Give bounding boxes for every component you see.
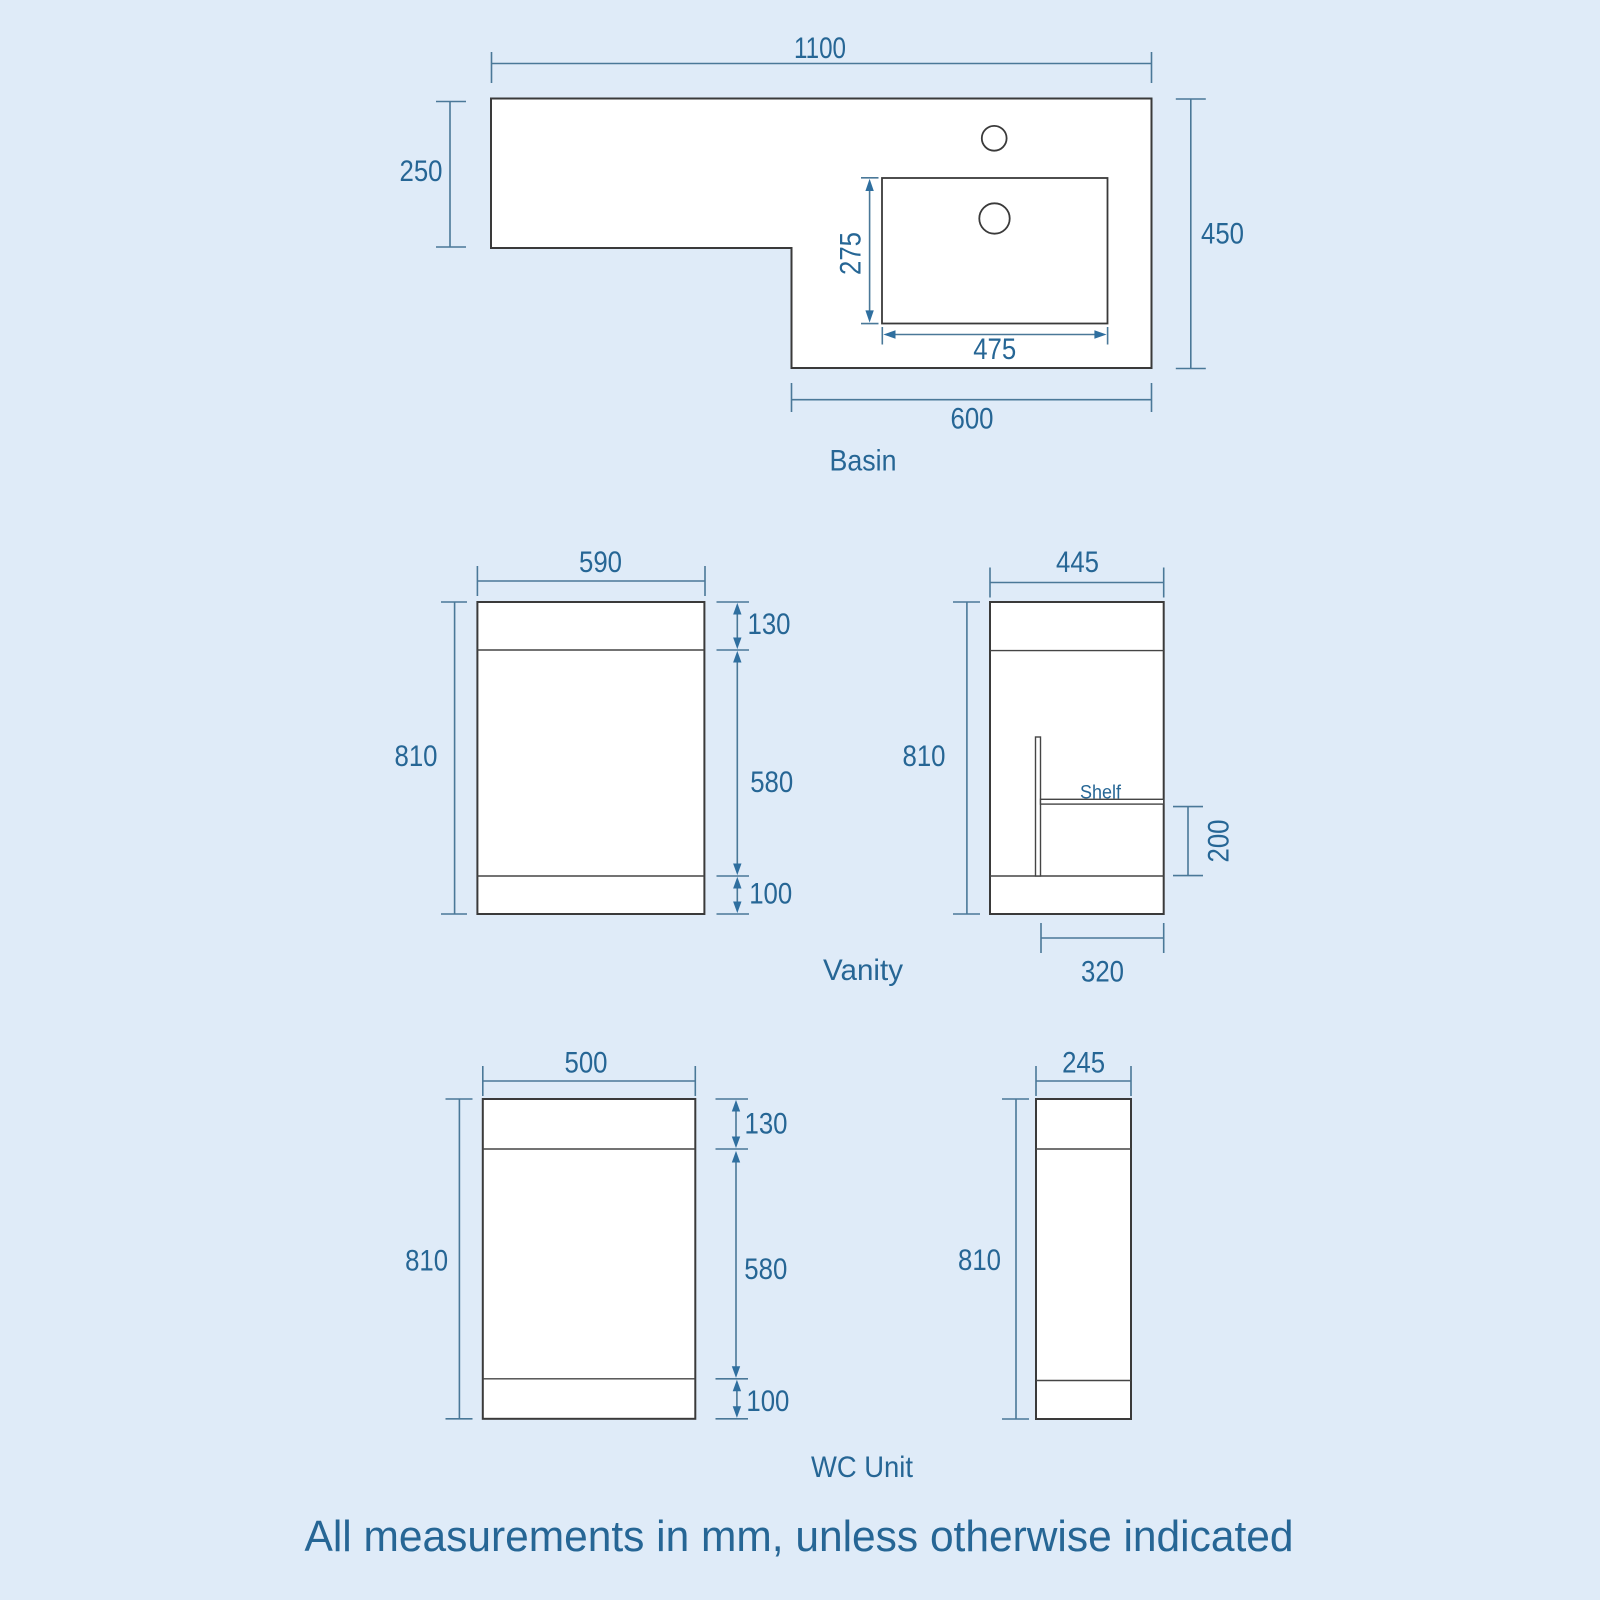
svg-text:1100: 1100 [794, 32, 846, 65]
svg-text:320: 320 [1081, 956, 1124, 989]
svg-text:580: 580 [750, 766, 793, 799]
svg-text:WC Unit: WC Unit [811, 1451, 914, 1484]
svg-text:Shelf: Shelf [1080, 783, 1122, 804]
svg-text:Vanity: Vanity [823, 954, 903, 987]
svg-text:450: 450 [1201, 218, 1244, 251]
svg-text:245: 245 [1062, 1047, 1105, 1080]
svg-text:250: 250 [400, 155, 443, 188]
svg-text:810: 810 [903, 740, 946, 773]
svg-text:580: 580 [744, 1253, 787, 1286]
svg-text:100: 100 [749, 877, 792, 910]
svg-text:275: 275 [835, 232, 868, 275]
svg-text:130: 130 [745, 1107, 788, 1140]
svg-text:590: 590 [579, 546, 622, 579]
svg-text:Basin: Basin [830, 445, 897, 478]
svg-text:130: 130 [748, 608, 791, 641]
svg-text:600: 600 [951, 403, 994, 436]
svg-text:810: 810 [395, 740, 438, 773]
svg-text:810: 810 [958, 1244, 1001, 1277]
svg-text:All measurements in mm, unless: All measurements in mm, unless otherwise… [305, 1512, 1294, 1561]
svg-text:500: 500 [565, 1047, 608, 1080]
svg-text:475: 475 [973, 333, 1016, 366]
svg-text:810: 810 [405, 1244, 448, 1277]
svg-text:445: 445 [1056, 546, 1099, 579]
svg-text:100: 100 [746, 1385, 789, 1418]
svg-text:200: 200 [1203, 820, 1236, 863]
